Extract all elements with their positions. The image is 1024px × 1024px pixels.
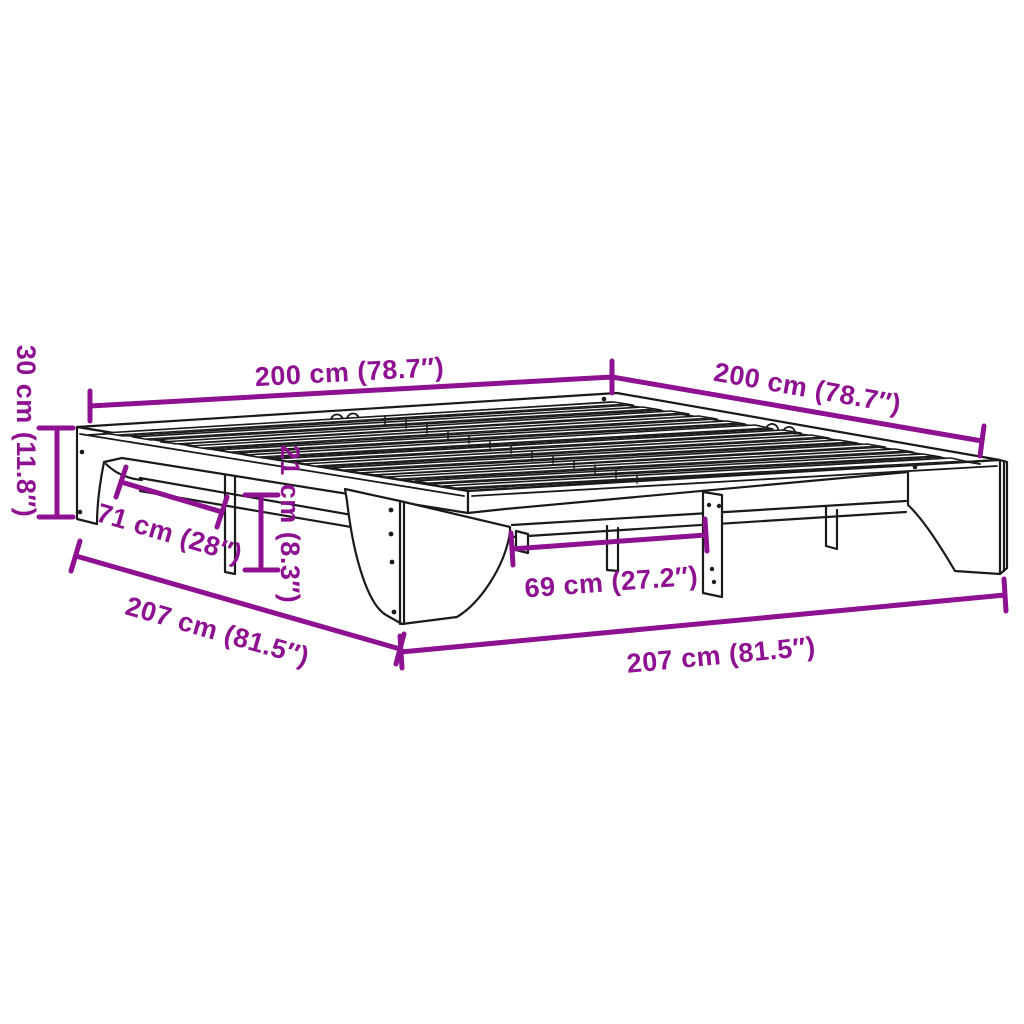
dim-line-floor-clearance: [245, 495, 278, 570]
dim-label-height-left: 30 cm (11.8″): [11, 345, 41, 518]
bed-frame-dimension-drawing: 200 cm (78.7″) 200 cm (78.7″) 30 cm (11.…: [0, 0, 1024, 1024]
support-post-rear-right: [826, 507, 837, 549]
dim-label-leg-span-right: 69 cm (27.2″): [523, 561, 699, 604]
support-post-mid-right: [607, 526, 618, 571]
dim-line-height-left: [39, 428, 73, 517]
dim-label-length-bottom-right: 207 cm (81.5″): [625, 631, 817, 679]
product-dimension-diagram: 200 cm (78.7″) 200 cm (78.7″) 30 cm (11.…: [0, 0, 1024, 1024]
dim-label-floor-clearance: 21 cm (8.3″): [275, 445, 305, 604]
